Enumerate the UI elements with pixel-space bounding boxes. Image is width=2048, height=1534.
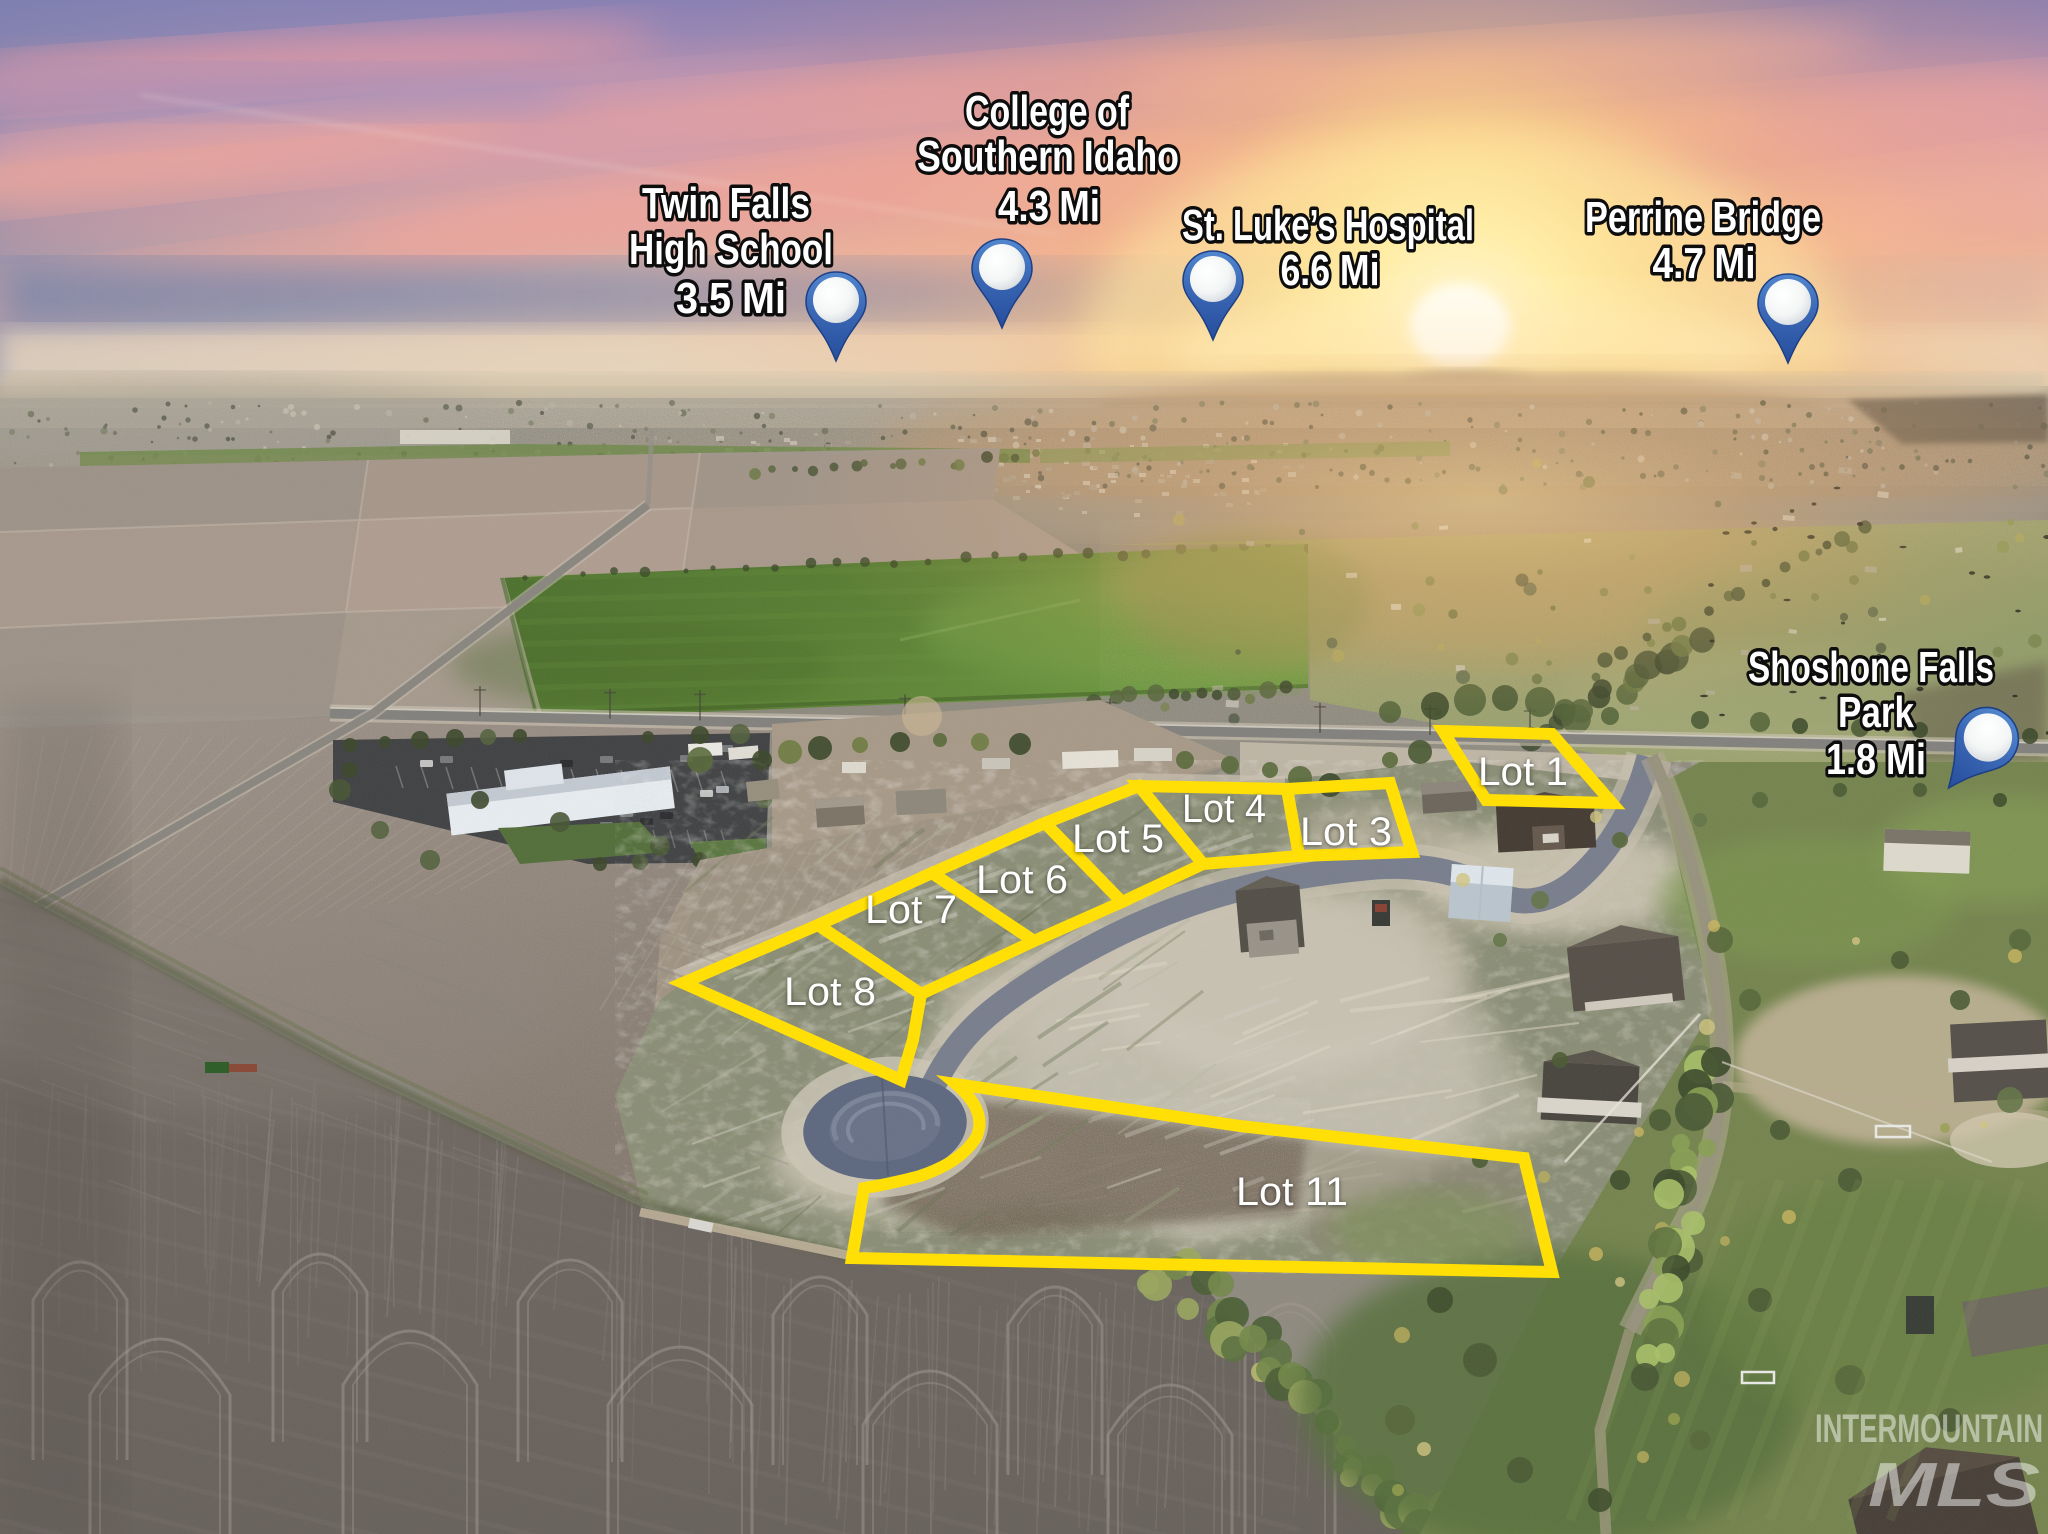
svg-text:Lot 4: Lot 4 bbox=[1182, 787, 1266, 831]
svg-text:College of: College of bbox=[965, 87, 1129, 136]
svg-text:Lot 6: Lot 6 bbox=[976, 858, 1068, 902]
svg-text:1.8 Mi: 1.8 Mi bbox=[1826, 735, 1926, 784]
svg-text:Lot 7: Lot 7 bbox=[865, 888, 957, 932]
svg-text:4.3 Mi: 4.3 Mi bbox=[998, 182, 1100, 231]
svg-text:3.5 Mi: 3.5 Mi bbox=[676, 274, 786, 323]
svg-text:4.7 Mi: 4.7 Mi bbox=[1653, 239, 1756, 288]
svg-text:Lot 5: Lot 5 bbox=[1072, 817, 1164, 861]
svg-text:Southern Idaho: Southern Idaho bbox=[917, 132, 1179, 181]
svg-text:St. Luke’s Hospital: St. Luke’s Hospital bbox=[1182, 201, 1474, 250]
svg-text:Lot 11: Lot 11 bbox=[1236, 1170, 1348, 1214]
svg-text:High School: High School bbox=[629, 225, 833, 274]
svg-text:Twin Falls: Twin Falls bbox=[642, 179, 810, 228]
svg-text:Lot 1: Lot 1 bbox=[1478, 750, 1568, 794]
svg-text:Lot 8: Lot 8 bbox=[784, 970, 876, 1014]
svg-text:Lot 3: Lot 3 bbox=[1300, 810, 1392, 854]
svg-text:MLS: MLS bbox=[1868, 1451, 2040, 1520]
svg-text:Perrine Bridge: Perrine Bridge bbox=[1585, 193, 1821, 242]
svg-text:INTERMOUNTAIN: INTERMOUNTAIN bbox=[1815, 1407, 2043, 1451]
svg-text:Shoshone Falls: Shoshone Falls bbox=[1748, 643, 1994, 692]
svg-text:6.6 Mi: 6.6 Mi bbox=[1281, 246, 1380, 295]
svg-text:Park: Park bbox=[1838, 688, 1914, 737]
